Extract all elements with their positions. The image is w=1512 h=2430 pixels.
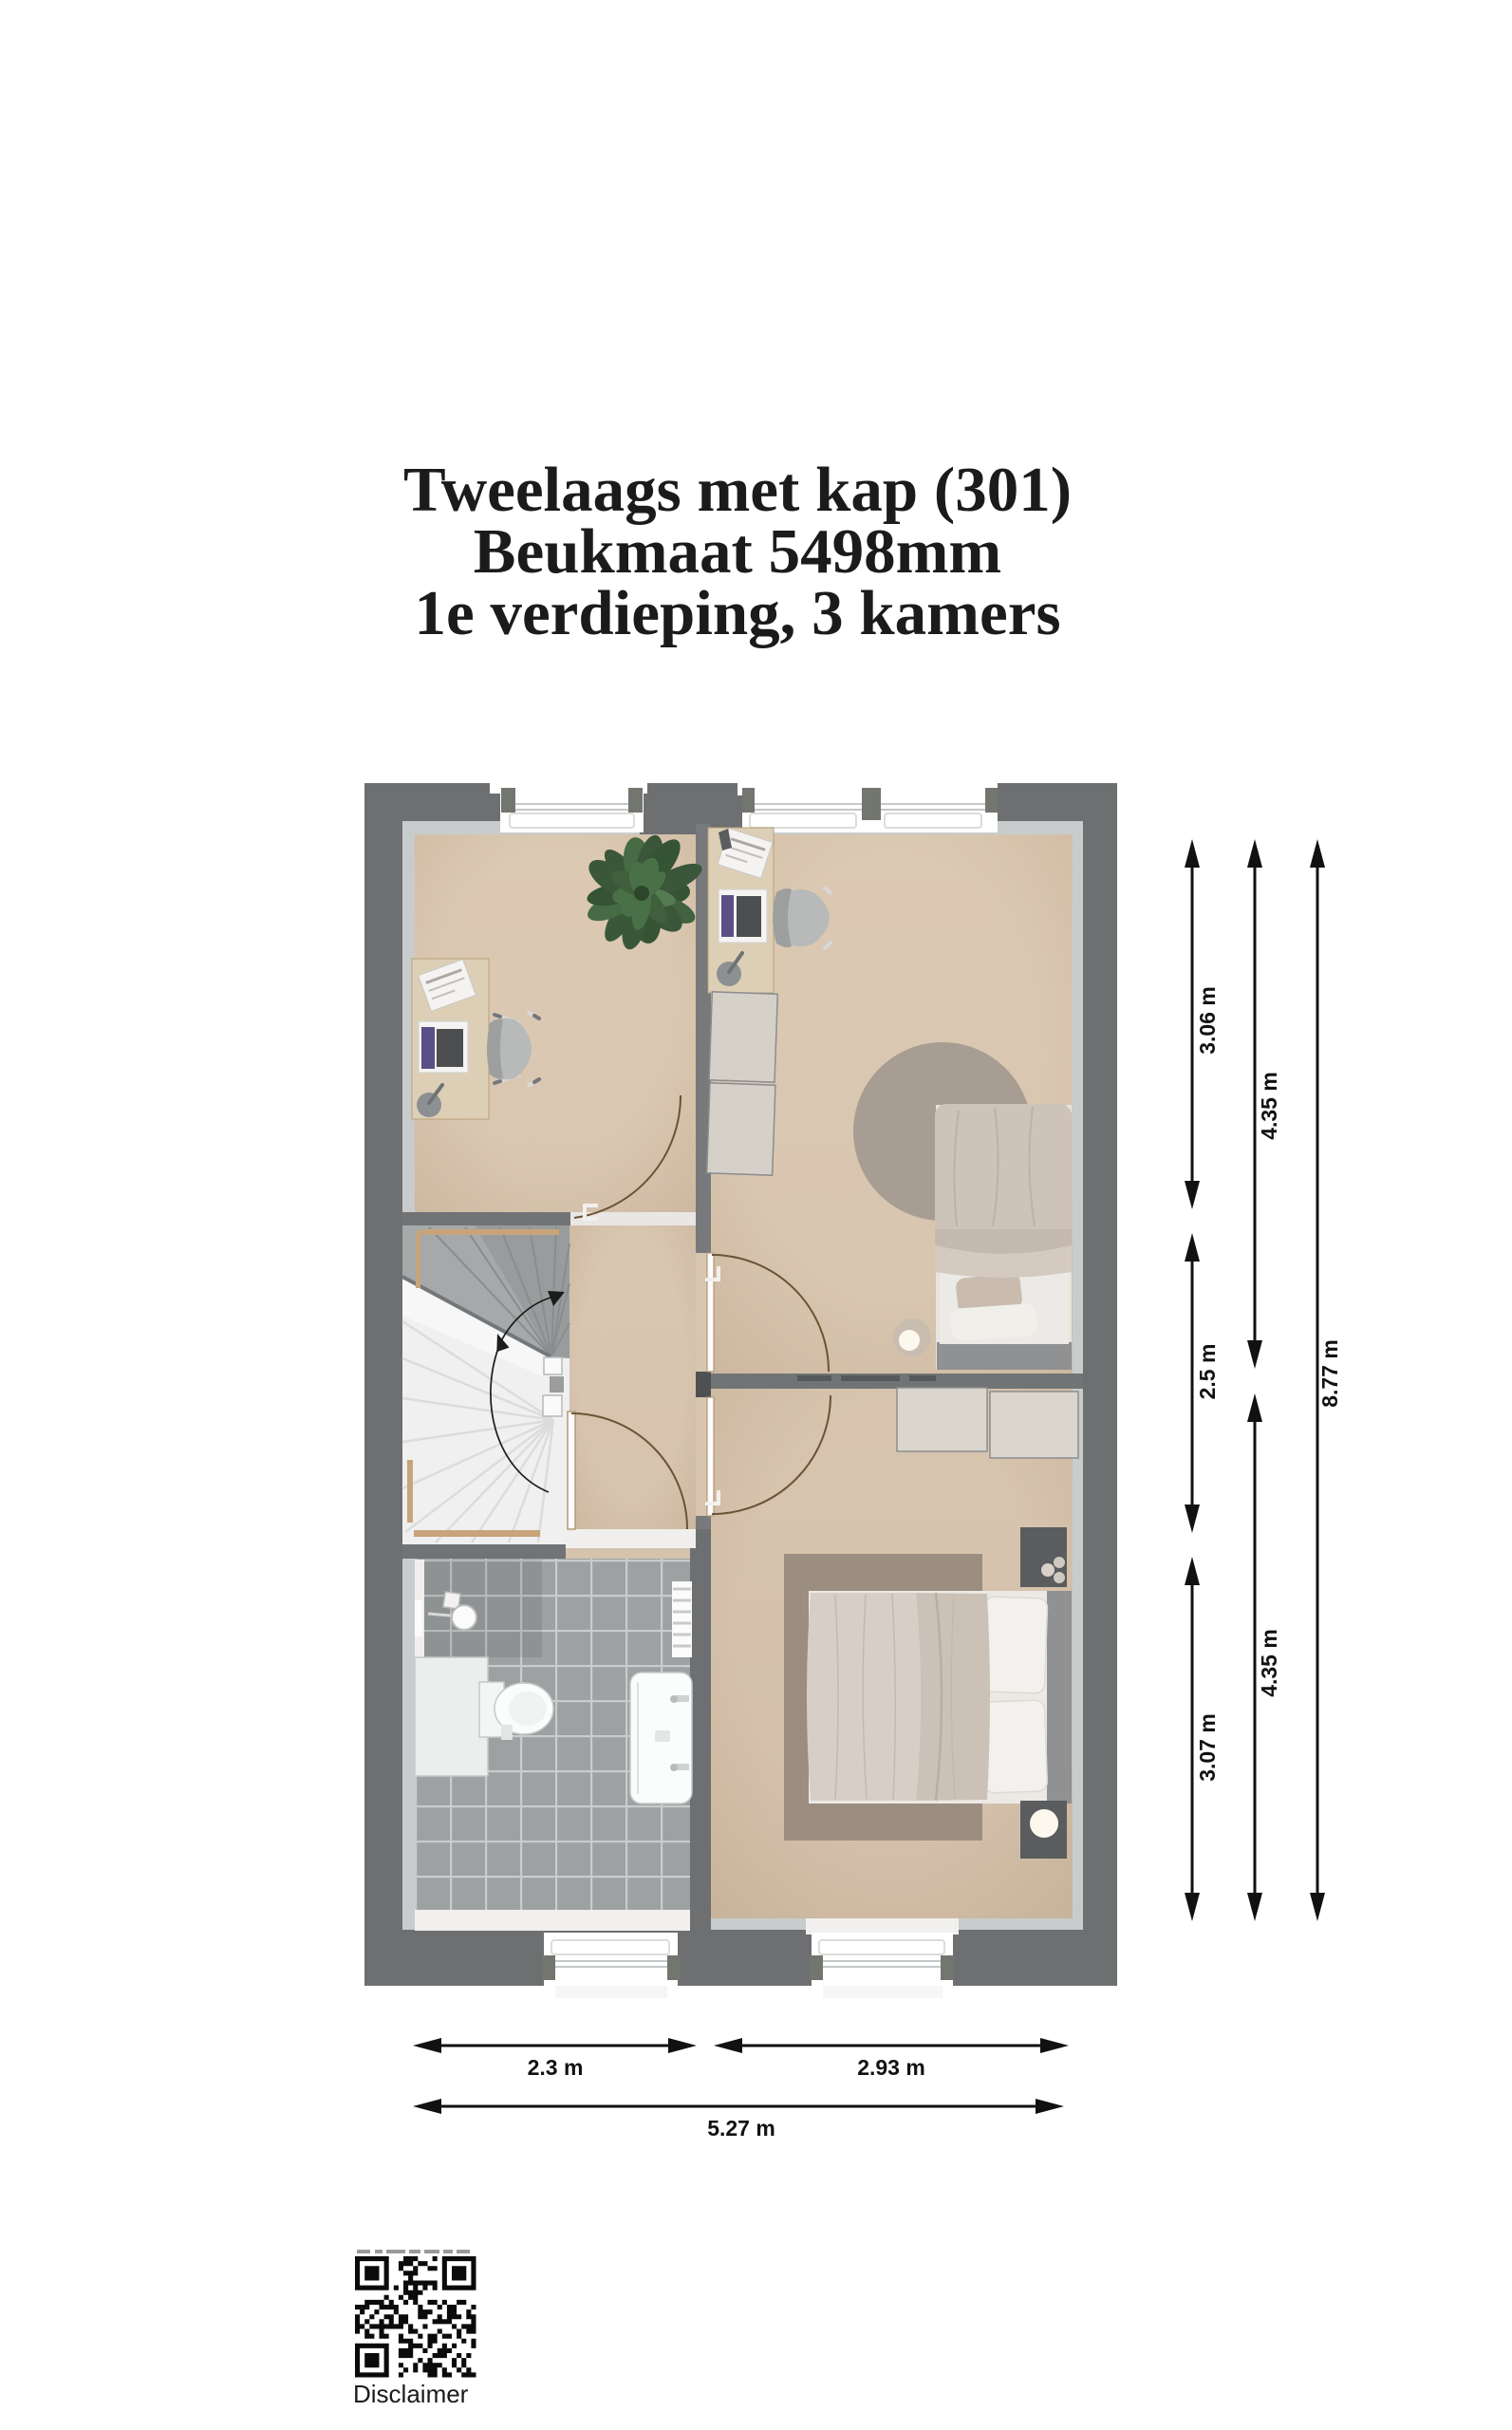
svg-text:2.3 m: 2.3 m — [528, 2055, 584, 2080]
svg-text:2.93 m: 2.93 m — [857, 2055, 925, 2080]
svg-text:8.77 m: 8.77 m — [1317, 1339, 1342, 1408]
svg-text:3.06 m: 3.06 m — [1195, 986, 1220, 1055]
svg-text:4.35 m: 4.35 m — [1257, 1072, 1281, 1140]
svg-text:4.35 m: 4.35 m — [1257, 1629, 1281, 1697]
svg-text:2.5 m: 2.5 m — [1195, 1344, 1220, 1400]
svg-text:Disclaimer: Disclaimer — [353, 2380, 469, 2408]
svg-text:5.27 m: 5.27 m — [707, 2116, 775, 2140]
svg-text:3.07 m: 3.07 m — [1195, 1713, 1220, 1782]
